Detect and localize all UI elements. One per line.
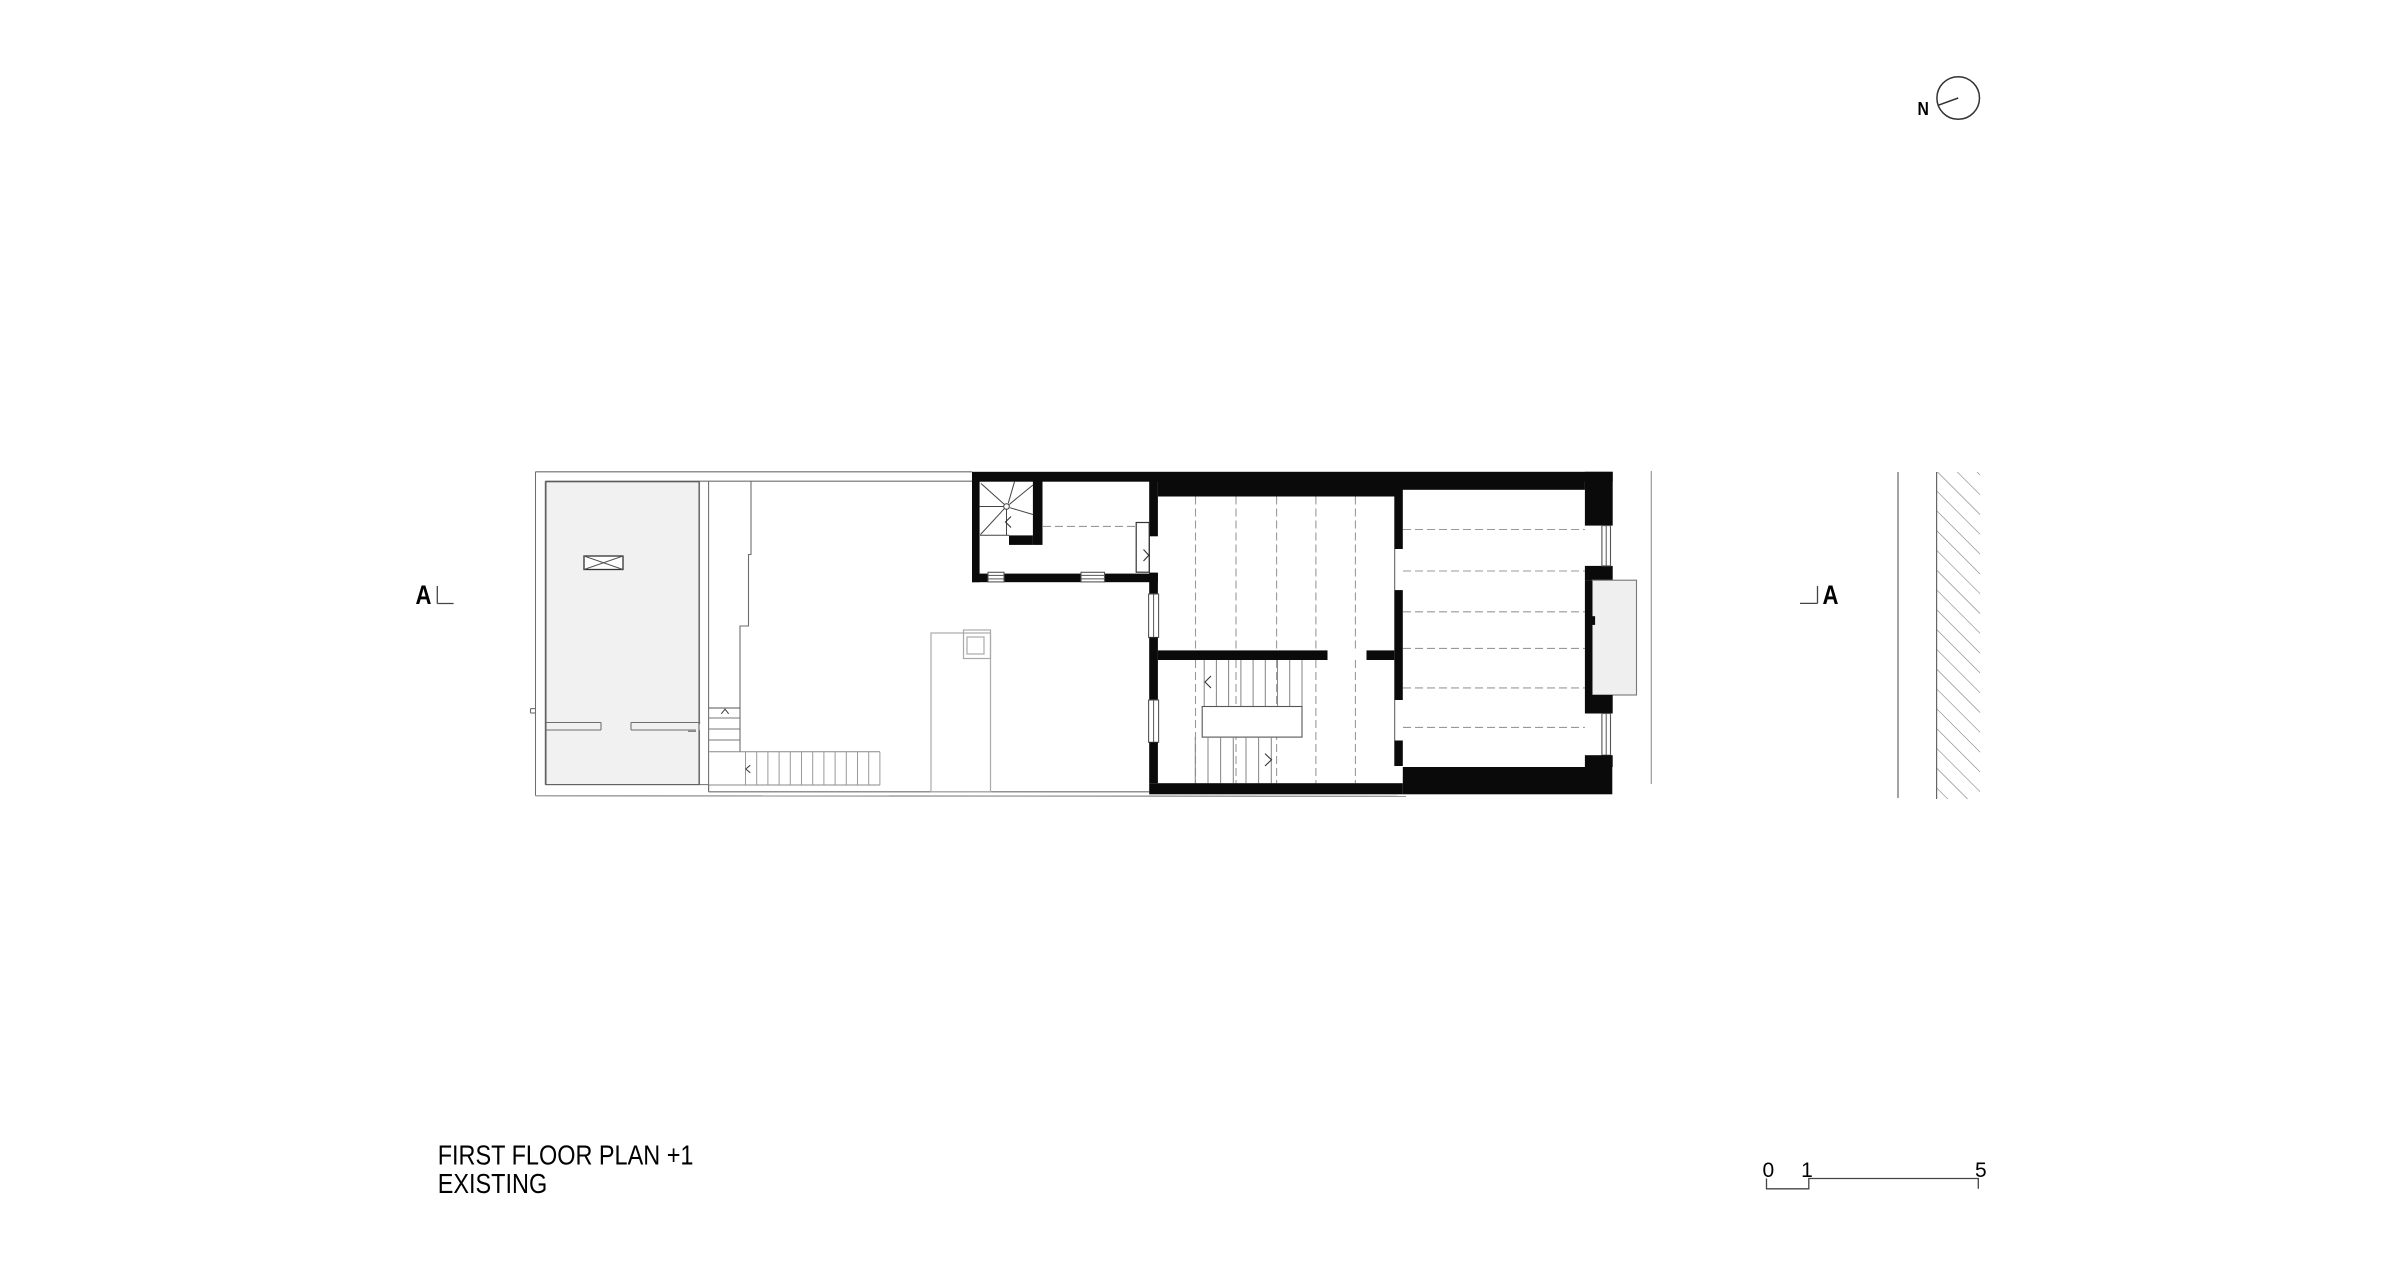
svg-text:A: A <box>416 581 432 611</box>
svg-text:0: 0 <box>1762 1159 1774 1182</box>
svg-text:A: A <box>1823 581 1839 611</box>
svg-text:EXISTING: EXISTING <box>438 1169 548 1199</box>
svg-text:FIRST FLOOR PLAN +1: FIRST FLOOR PLAN +1 <box>438 1140 694 1170</box>
svg-text:N: N <box>1918 98 1929 120</box>
